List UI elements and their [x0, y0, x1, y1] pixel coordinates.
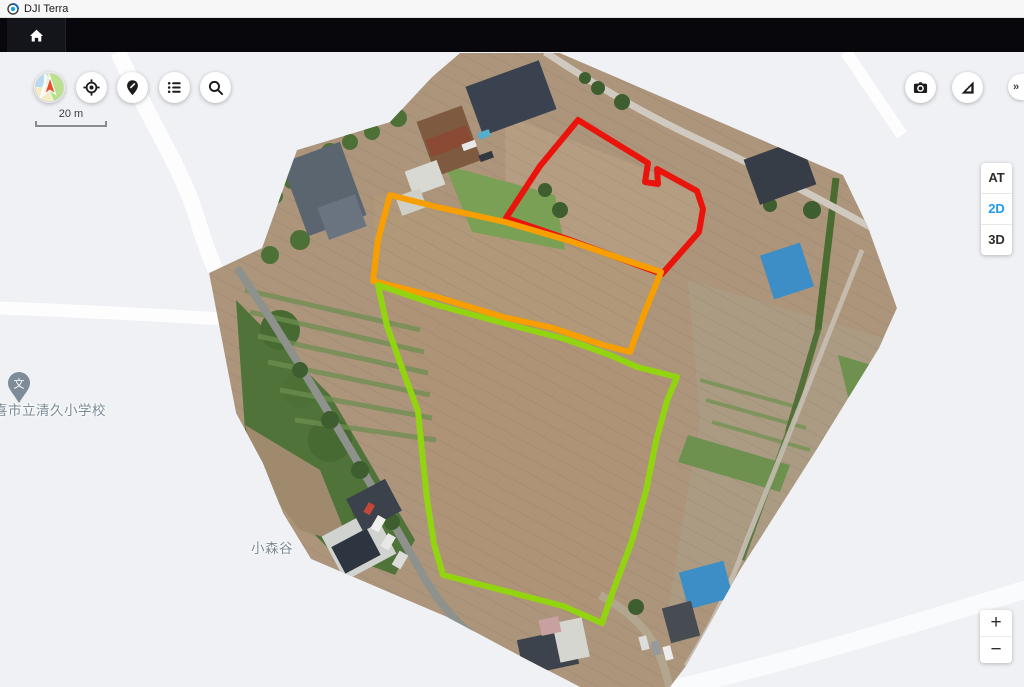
- marker-button[interactable]: [117, 72, 148, 103]
- measure-button[interactable]: [952, 72, 983, 103]
- zoom-controls: + −: [980, 610, 1012, 663]
- app-logo-icon: [7, 3, 19, 15]
- home-button[interactable]: [7, 18, 66, 52]
- measure-icon: [959, 79, 976, 96]
- scale-line: [35, 121, 107, 127]
- view-mode-2d[interactable]: 2D: [981, 194, 1012, 225]
- map-label-komoriya: 小森谷: [251, 537, 293, 557]
- search-icon: [207, 79, 224, 96]
- map-label-school: 喜市立清久小学校: [0, 399, 106, 419]
- window-titlebar: DJI Terra: [0, 0, 1024, 18]
- basemap-icon: [34, 72, 65, 103]
- scale-bar: 20 m: [35, 108, 107, 127]
- scale-label: 20 m: [35, 108, 107, 120]
- view-mode-3d[interactable]: 3D: [981, 225, 1012, 255]
- zoom-in-button[interactable]: +: [980, 610, 1012, 637]
- search-button[interactable]: [200, 72, 231, 103]
- list-icon: [166, 79, 183, 96]
- marker-icon: [124, 79, 141, 96]
- map-viewport[interactable]: 文 喜市立清久小学校 小森谷: [0, 52, 1024, 687]
- view-mode-at[interactable]: AT: [981, 163, 1012, 194]
- locate-icon: [83, 79, 100, 96]
- double-chevron-icon: »: [1013, 81, 1019, 93]
- map-canvas[interactable]: 文: [0, 52, 1024, 687]
- list-button[interactable]: [159, 72, 190, 103]
- view-mode-switch: AT 2D 3D: [981, 163, 1012, 255]
- camera-icon: [912, 79, 929, 96]
- basemap-button[interactable]: [34, 72, 65, 103]
- zoom-out-button[interactable]: −: [980, 637, 1012, 663]
- home-icon: [28, 27, 45, 44]
- top-navbar: [0, 18, 1024, 52]
- svg-text:文: 文: [14, 377, 25, 391]
- camera-button[interactable]: [905, 72, 936, 103]
- locate-button[interactable]: [76, 72, 107, 103]
- window-title: DJI Terra: [24, 3, 68, 15]
